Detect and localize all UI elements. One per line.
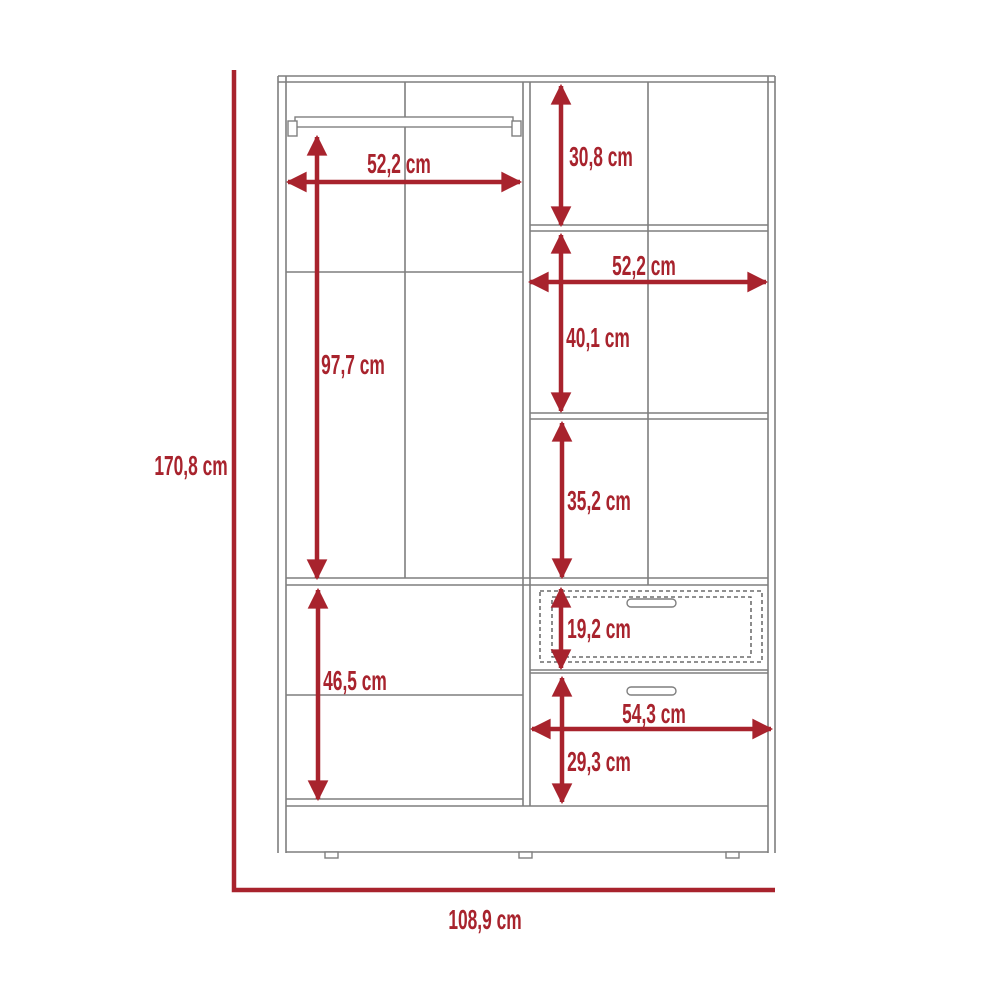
bottom-drawer-handle <box>627 687 676 695</box>
dim-label-top-drawer-height: 19,2 cm <box>567 615 631 643</box>
dim-label-right-section-width: 52,2 cm <box>612 252 676 280</box>
wardrobe-outline <box>278 76 775 853</box>
diagram-canvas: 170,8 cm 52,2 cm 97,7 cm 46,5 cm 30,8 cm… <box>0 0 1000 1000</box>
wardrobe-feet <box>325 852 739 858</box>
dim-label-total-height: 170,8 cm <box>154 452 227 480</box>
drawer-handles <box>627 599 676 695</box>
top-drawer-handle <box>627 599 676 607</box>
dim-label-lower-right-shelf-height: 35,2 cm <box>567 487 631 515</box>
dim-label-left-section-width: 52,2 cm <box>367 150 431 178</box>
dim-label-drawer-width: 54,3 cm <box>622 700 686 728</box>
dim-label-bottom-drawer-height: 29,3 cm <box>567 748 631 776</box>
dim-label-total-width: 108,9 cm <box>448 906 521 934</box>
dim-label-middle-right-shelf-height: 40,1 cm <box>566 324 630 352</box>
dimension-arrows <box>234 70 775 890</box>
dim-label-lower-left-section-height: 46,5 cm <box>323 667 387 695</box>
wardrobe-line-drawing <box>0 0 1000 1000</box>
dim-label-top-right-shelf-height: 30,8 cm <box>569 143 633 171</box>
dim-label-hanging-space-height: 97,7 cm <box>321 351 385 379</box>
